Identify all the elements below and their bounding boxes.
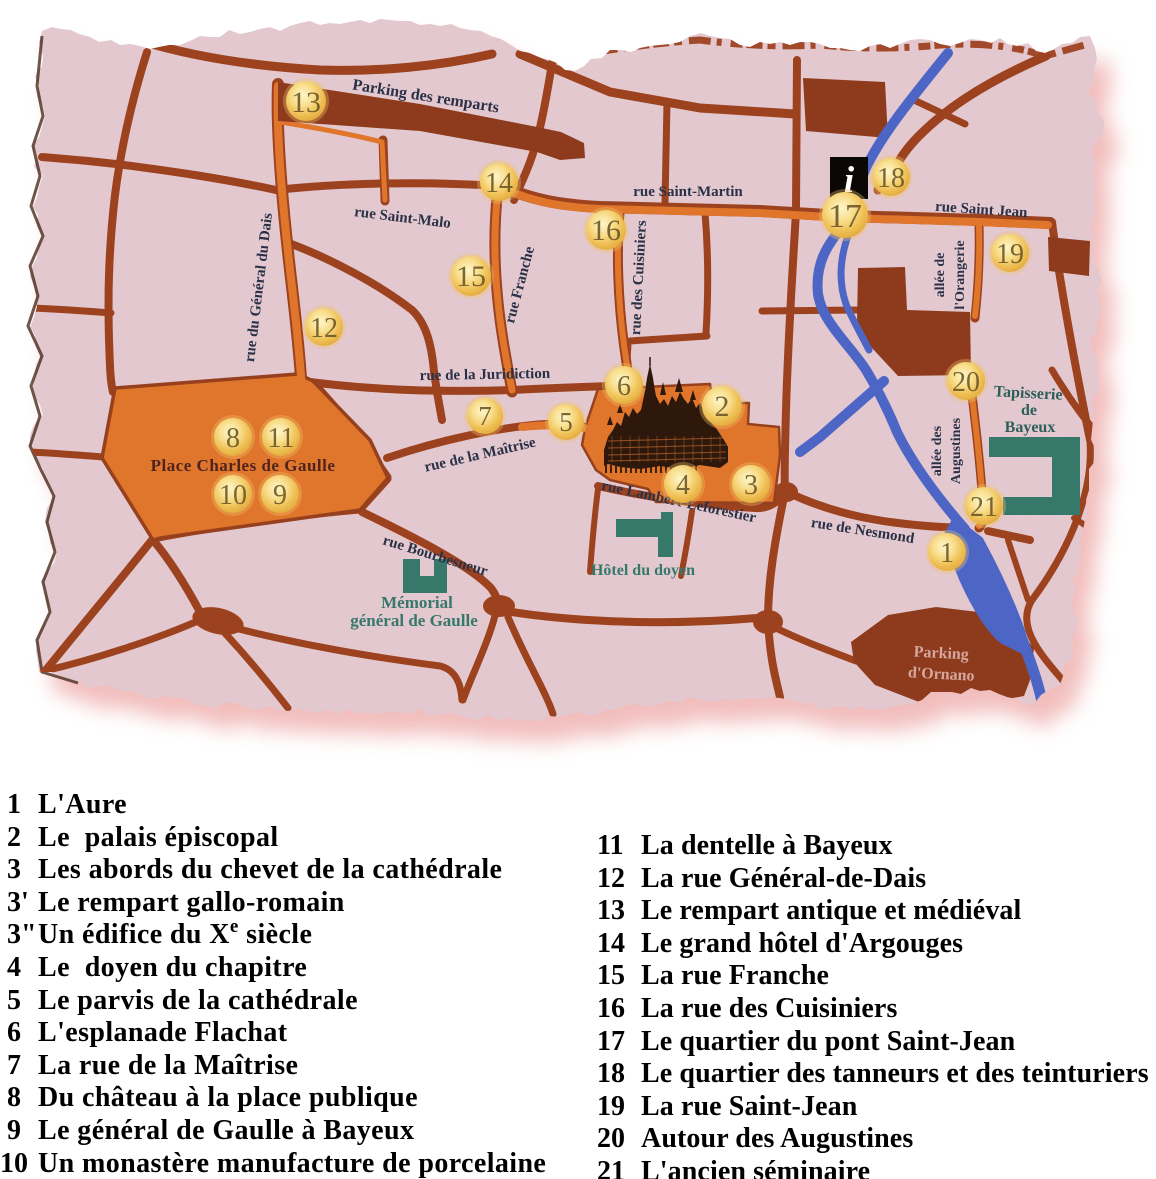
svg-text:5: 5 [559, 407, 573, 437]
svg-text:Bayeux: Bayeux [1005, 419, 1056, 436]
svg-text:17: 17 [828, 198, 862, 235]
svg-text:11: 11 [268, 423, 295, 454]
svg-text:9: 9 [273, 480, 287, 511]
svg-text:3: 3 [744, 470, 758, 501]
svg-text:allée de: allée de [933, 253, 948, 298]
svg-text:10: 10 [219, 480, 247, 511]
svg-text:13: 13 [291, 86, 321, 119]
svg-text:1: 1 [940, 538, 954, 569]
svg-text:rue de la Juridiction: rue de la Juridiction [420, 366, 551, 384]
svg-text:Mémorial: Mémorial [381, 593, 453, 612]
svg-text:allée des: allée des [930, 425, 945, 476]
svg-text:4: 4 [676, 470, 690, 501]
svg-text:d'Ornano: d'Ornano [907, 664, 974, 684]
svg-text:8: 8 [226, 423, 240, 454]
svg-text:12: 12 [310, 313, 338, 344]
svg-text:l'Orangerie: l'Orangerie [953, 240, 968, 309]
svg-text:Place Charles de Gaulle: Place Charles de Gaulle [151, 456, 336, 475]
svg-text:6: 6 [617, 371, 631, 402]
svg-text:20: 20 [952, 367, 980, 398]
svg-text:19: 19 [996, 239, 1024, 270]
svg-text:Augustines: Augustines [949, 417, 964, 484]
svg-text:Hôtel du doyen: Hôtel du doyen [591, 562, 695, 579]
svg-text:2: 2 [715, 390, 730, 423]
svg-text:14: 14 [485, 168, 513, 199]
svg-text:7: 7 [478, 401, 492, 431]
svg-text:Parking: Parking [913, 644, 969, 664]
svg-text:15: 15 [456, 260, 486, 293]
svg-text:de: de [1021, 402, 1037, 419]
svg-text:général de Gaulle: général de Gaulle [350, 611, 478, 630]
svg-text:18: 18 [877, 163, 905, 194]
svg-text:Tapisserie: Tapisserie [993, 383, 1063, 404]
svg-text:16: 16 [591, 214, 621, 247]
svg-text:rue Saint-Martin: rue Saint-Martin [633, 184, 743, 200]
svg-text:21: 21 [970, 492, 998, 523]
